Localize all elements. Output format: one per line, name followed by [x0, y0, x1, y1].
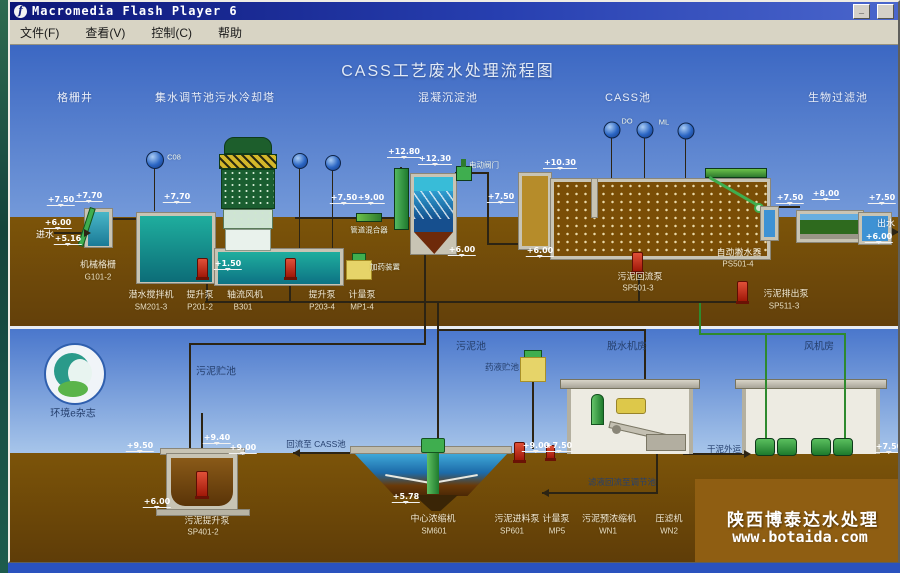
menu-bar: 文件(F)查看(V)控制(C)帮助 [10, 20, 898, 45]
diagram-label: ML [659, 118, 669, 127]
flash-player-window: f Macromedia Flash Player 6 _ 文件(F)查看(V)… [8, 0, 900, 563]
diagram-label: 污泥贮池 [196, 363, 236, 378]
air-pipe [765, 333, 767, 439]
diagram-label: 提升泵 [186, 288, 213, 301]
instrument-sensor-icon [678, 123, 695, 140]
filter-press [646, 434, 686, 451]
flash-icon: f [14, 5, 27, 18]
menu-item-file[interactable]: 文件(F) [20, 24, 59, 41]
elevation-marker: +7.70 [75, 191, 103, 202]
biofilter-media [800, 220, 860, 234]
window-title: Macromedia Flash Player 6 [32, 4, 846, 18]
diagram-label: 陕西博泰达水处理 [727, 506, 879, 531]
sedimentation-topwater [414, 177, 453, 191]
dosing-tank [346, 260, 372, 280]
biofilter-inlet-water [764, 210, 775, 237]
instrument-sensor-icon [146, 151, 164, 169]
thickener-column [427, 452, 439, 494]
elevation-marker: +6.00 [865, 232, 893, 243]
pipe [437, 301, 439, 447]
elevation-marker: +1.50 [214, 259, 242, 270]
instrument-sensor-icon [325, 155, 341, 171]
cass-pier [591, 178, 598, 218]
diagram-label: 风机房 [804, 338, 834, 353]
biofilter-underdrain [800, 234, 860, 239]
elevation-marker: +9.00 [229, 443, 257, 454]
pipe [542, 492, 658, 494]
polymer-column [591, 394, 604, 425]
env-logo-green [58, 381, 88, 397]
diagram-label: www.botaida.com [732, 528, 867, 546]
cooling-tower-fill-band [219, 154, 277, 169]
pipe [189, 343, 191, 457]
decanter-bar [705, 168, 767, 178]
menu-item-view[interactable]: 查看(V) [85, 24, 125, 41]
title-bar: f Macromedia Flash Player 6 _ [10, 2, 898, 20]
pipe [656, 452, 658, 494]
diagram-label: 进水 [36, 228, 54, 241]
diagram-title: CASS工艺废水处理流程图 [341, 57, 555, 81]
diagram-label: SP501-3 [622, 284, 653, 293]
pump-icon [285, 258, 296, 278]
elevation-marker: +7.50 [47, 195, 75, 206]
diagram-label: B301 [234, 303, 253, 312]
desktop-edge [0, 0, 8, 573]
sedimentation-lower [414, 219, 453, 232]
pipe-mixer [356, 213, 382, 222]
elevation-marker: +8.00 [812, 189, 840, 200]
pipe [424, 255, 426, 345]
diagram-label: P201-2 [187, 303, 213, 312]
diagram-label: 污水冷却塔 [215, 89, 275, 105]
cooling-tower-body [221, 169, 275, 209]
pipe [154, 168, 155, 211]
pipe [189, 343, 425, 345]
belt-roller-1 [612, 425, 621, 434]
pump-icon [196, 471, 208, 497]
pump-icon [197, 258, 208, 278]
elevation-marker: +6.00 [448, 245, 476, 256]
process-diagram: CASS工艺废水处理流程图 格栅井集水调节池污水冷却塔混凝沉淀池CASS池生物过… [10, 45, 898, 562]
diagram-label: 潜水搅拌机 [128, 288, 173, 301]
pipe [293, 452, 357, 454]
elevation-marker: +9.50 [126, 441, 154, 452]
diagram-label: 提升泵 [308, 288, 335, 301]
elevation-marker: +7.50 [487, 192, 515, 203]
diagram-label: 电动阀门 [469, 160, 499, 171]
pipe [332, 170, 333, 254]
diagram-label: MP1-4 [350, 303, 374, 312]
chem-storage-tank [520, 357, 546, 382]
pipe [532, 381, 534, 449]
diagram-label: P203-4 [309, 303, 335, 312]
diagram-label: WN2 [660, 527, 678, 536]
instrument-sensor-icon [637, 122, 654, 139]
flow-arrow [744, 450, 755, 458]
diagram-label: SM201-3 [135, 303, 167, 312]
diagram-label: MP5 [549, 527, 565, 536]
cass-inlet-fill [522, 176, 548, 246]
diagram-label: 自动撇水器 [716, 246, 761, 259]
blower-1a [755, 438, 775, 456]
instrument-sensor-icon [604, 122, 621, 139]
flow-arrow [538, 489, 549, 497]
diagram-label: 格栅井 [57, 89, 93, 105]
menu-item-control[interactable]: 控制(C) [151, 24, 192, 41]
maximize-button[interactable] [877, 4, 894, 19]
elevation-marker: +7.70 [163, 192, 191, 203]
diagram-label: 污泥提升泵 [184, 514, 229, 527]
air-pipe [699, 303, 701, 335]
diagram-label: 生物过滤池 [808, 89, 868, 105]
diagram-label: 药液贮池 [485, 361, 519, 373]
diagram-label: 管道混合器 [350, 225, 388, 236]
diagram-label: DO [621, 117, 632, 126]
diagram-label: 污泥回流泵 [617, 270, 662, 283]
electric-valve-stem [461, 159, 466, 167]
elevation-marker: +9.40 [203, 433, 231, 444]
diagram-label: 中心浓缩机 [410, 512, 455, 525]
elevation-marker: +9.00 [357, 193, 385, 204]
diagram-label: G101-2 [85, 273, 112, 282]
dewatering-roof [560, 379, 700, 389]
diagram-label: 计量泵 [348, 288, 375, 301]
elevation-marker: +7.50 [545, 441, 573, 452]
sedimentation-inlet-column [394, 168, 409, 230]
diagram-label: 污泥池 [456, 338, 486, 353]
diagram-label: 加药装置 [370, 262, 400, 273]
elevation-marker: +6.00 [143, 497, 171, 508]
diagram-label: SP401-2 [187, 528, 218, 537]
cooling-tower-lower [223, 209, 273, 229]
diagram-label: 干泥外运 [707, 443, 741, 455]
minimize-button[interactable]: _ [853, 4, 870, 19]
cooling-tower-base [225, 229, 271, 251]
elevation-marker: +7.50 [875, 442, 898, 453]
flow-arrow [84, 229, 95, 237]
diagram-label: 污泥预浓缩机 [582, 512, 636, 525]
elevation-marker: +7.50 [868, 193, 896, 204]
diagram-label: CASS池 [605, 89, 651, 105]
diagram-label: PS501-4 [722, 260, 753, 269]
thickener-drive-motor [421, 438, 445, 453]
diagram-label: 轴流风机 [227, 288, 263, 301]
blower-2a [811, 438, 831, 456]
pipe [299, 168, 300, 252]
diagram-label: 集水调节池 [155, 89, 215, 105]
elevation-marker: +7.50 [330, 193, 358, 204]
pump-icon [737, 281, 748, 302]
diagram-label: 混凝沉淀池 [418, 89, 478, 105]
pipe [205, 301, 748, 303]
elevation-marker: +7.50 [776, 193, 804, 204]
diagram-label: 污泥进料泵 [494, 512, 539, 525]
air-pipe [699, 333, 846, 335]
instrument-sensor-icon [292, 153, 308, 169]
polymer-tank [616, 398, 646, 414]
diagram-label: 计量泵 [542, 512, 569, 525]
diagram-label: 出水 [877, 217, 895, 230]
diagram-label: 压滤机 [655, 512, 682, 525]
elevation-marker: +12.80 [387, 147, 421, 158]
pipe [487, 172, 489, 245]
cooling-tower-cap [224, 137, 272, 154]
flash-stage: CASS工艺废水处理流程图 格栅井集水调节池污水冷却塔混凝沉淀池CASS池生物过… [10, 45, 898, 562]
elevation-marker: +12.30 [418, 154, 452, 165]
diagram-label: 机械格栅 [80, 258, 116, 271]
blower-1b [777, 438, 797, 456]
diagram-label: SM601 [421, 527, 446, 536]
elevation-marker: +6.00 [44, 218, 72, 229]
elevation-marker: +5.78 [392, 492, 420, 503]
diagram-label: WN1 [599, 527, 617, 536]
menu-item-help[interactable]: 帮助 [218, 24, 242, 41]
elevation-marker: +10.30 [543, 158, 577, 169]
diagram-label: 回流至 CASS池 [286, 438, 346, 450]
sedimentation-lamella [414, 191, 453, 219]
fanroom-roof [735, 379, 887, 389]
diagram-label: SP601 [500, 527, 524, 536]
diagram-label: C08 [167, 153, 181, 162]
diagram-label: 脱水机房 [607, 338, 647, 353]
blower-2b [833, 438, 853, 456]
air-pipe [844, 333, 846, 439]
pipe [437, 329, 645, 331]
elevation-marker: +5.16 [54, 234, 82, 245]
diagram-label: 环境e杂志 [50, 405, 96, 420]
diagram-label: SP511-3 [769, 302, 800, 311]
elevation-marker: +6.00 [526, 246, 554, 257]
diagram-label: 污泥排出泵 [763, 287, 808, 300]
diagram-label: 滤液回流至调节池 [588, 476, 656, 488]
flow-arrow [289, 449, 300, 457]
